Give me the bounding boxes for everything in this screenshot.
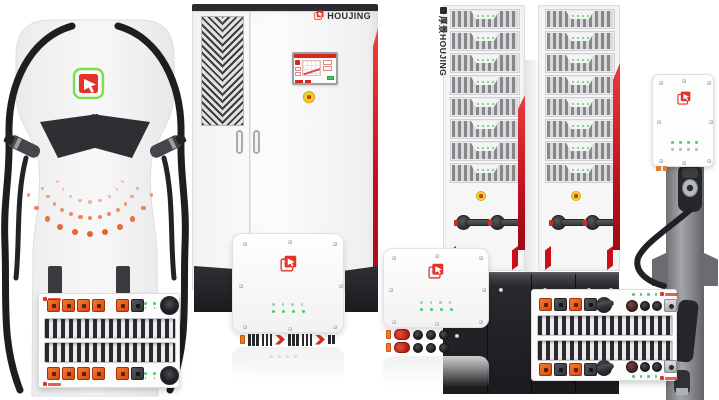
led-dot [582, 81, 584, 83]
product-lineup-image: HOUJING [0, 0, 719, 400]
ventilation-grille [201, 16, 244, 126]
connector-black [640, 362, 650, 372]
screw [479, 320, 483, 324]
houjing-icon-dark [440, 7, 447, 14]
connector-black [640, 301, 650, 311]
led-dot [482, 59, 484, 61]
led-dot [587, 15, 589, 17]
led-dot [572, 103, 574, 105]
screw [659, 159, 663, 163]
led-dot [477, 37, 479, 39]
reflection [232, 347, 344, 399]
connector-black-round [439, 343, 449, 353]
indicator-dot [27, 193, 31, 197]
pole-arm-left [652, 252, 668, 286]
led-dot [153, 372, 156, 375]
indicator-dot [34, 206, 39, 211]
io-connectors [626, 299, 677, 312]
status-leds [632, 375, 657, 378]
screw [657, 120, 661, 124]
status-leds [632, 293, 657, 296]
led-dot [671, 148, 674, 151]
indicator-dot [46, 195, 50, 199]
dc-connectors [539, 363, 597, 376]
led-dot [582, 125, 584, 127]
led-dot [487, 103, 489, 105]
connector-red-capsule [394, 342, 410, 353]
led-dot [292, 310, 295, 313]
led-dot [301, 303, 304, 306]
led-dot [477, 103, 479, 105]
indicator-dot [117, 224, 123, 230]
led-dot [577, 103, 579, 105]
screw [239, 284, 243, 288]
connector-black-round [426, 343, 436, 353]
houjing-logo: HOUJING [314, 10, 371, 21]
led-dot [587, 147, 589, 149]
connector-dark [554, 363, 567, 376]
led-dot [492, 125, 494, 127]
connector-red-capsule [394, 329, 410, 340]
indicator-dot [150, 193, 154, 197]
led-dot [440, 308, 443, 311]
led-dot [582, 15, 584, 17]
connector-orange [92, 299, 105, 312]
screw [709, 120, 713, 124]
vertical-brand-label: 厚景HOUJING [438, 7, 449, 76]
led-dot [587, 125, 589, 127]
screw [499, 288, 503, 292]
led-dot [582, 103, 584, 105]
inverter-unit-small [383, 248, 489, 328]
led-dot [492, 103, 494, 105]
ventilation-grille [44, 342, 176, 363]
connector-dark [584, 298, 597, 311]
led-dot [477, 169, 479, 171]
indicator-dot [72, 229, 78, 235]
led-dot [577, 169, 579, 171]
led-dot [487, 59, 489, 61]
rotary-switch-dc [456, 214, 492, 232]
led-dot [144, 302, 147, 305]
led-dot [577, 37, 579, 39]
houjing-icon [428, 263, 444, 284]
led-dot [572, 169, 574, 171]
indicator-dot [57, 224, 63, 230]
screw [707, 81, 711, 85]
tower-estop [477, 192, 485, 200]
screw [682, 161, 686, 165]
led-dot [655, 293, 658, 296]
tower-module-row [545, 97, 615, 117]
connector-orange [62, 299, 75, 312]
indicator-dot [78, 215, 83, 220]
led-dot [482, 125, 484, 127]
indicator-dot [116, 188, 119, 191]
led-dot [477, 59, 479, 61]
led-dot [291, 303, 294, 306]
terminal-row [386, 329, 449, 340]
led-dot [144, 372, 147, 375]
led-dot [695, 141, 698, 144]
indicator-dot [78, 199, 81, 202]
tower-gap-shadow [525, 60, 538, 275]
emergency-stop-button [304, 92, 314, 102]
connector-maroon [626, 361, 638, 373]
screen-header [294, 54, 336, 58]
red-accent-stripe [613, 63, 620, 250]
led-dot [632, 375, 635, 378]
led-dot [487, 37, 489, 39]
dc-connectors [47, 299, 144, 312]
screw [682, 79, 686, 83]
led-dot [587, 37, 589, 39]
connector-dark [131, 299, 144, 312]
led-dot [477, 81, 479, 83]
led-dot [482, 147, 484, 149]
led-dot [572, 37, 574, 39]
wall-terminal [656, 166, 661, 171]
led-dot [492, 169, 494, 171]
connector-orange [116, 299, 129, 312]
indicator-dot [41, 187, 44, 190]
connector-orange [77, 299, 90, 312]
ventilation-grille [537, 340, 673, 361]
connector-orange-tab [386, 330, 391, 339]
cabinet-base-right [345, 266, 378, 312]
screw [435, 254, 439, 258]
screw [455, 334, 459, 338]
tower-module-row [450, 119, 520, 139]
inverter-unit-large [232, 233, 344, 333]
module-stack [545, 9, 615, 185]
led-dot [492, 147, 494, 149]
led-dot [482, 169, 484, 171]
tower-module-row [545, 9, 615, 29]
screw [392, 256, 396, 260]
led-dot [679, 141, 682, 144]
led-dot [572, 147, 574, 149]
dc-connectors [47, 367, 144, 380]
indicator-dot [87, 231, 93, 237]
connector-orange [116, 367, 129, 380]
power-module-pair-left [38, 293, 180, 388]
red-accent-stripe [518, 95, 525, 250]
led-dot [492, 37, 494, 39]
led-dot [679, 148, 682, 151]
connector-pins [248, 334, 259, 346]
led-dot [482, 81, 484, 83]
screw [243, 242, 247, 246]
connector-orange [77, 367, 90, 380]
connector-silver [664, 360, 677, 373]
led-dot [487, 125, 489, 127]
led-dot [582, 169, 584, 171]
connector-dark [584, 363, 597, 376]
power-rack-tower-2 [538, 5, 620, 271]
screw [707, 159, 711, 163]
led-dot [632, 293, 635, 296]
houjing-icon [677, 91, 691, 110]
connector-black [652, 301, 662, 311]
connector-orange [92, 367, 105, 380]
led-dot [430, 308, 433, 311]
led-dot [582, 147, 584, 149]
screw [339, 284, 343, 288]
tower-module-row [450, 75, 520, 95]
led-dot [449, 301, 452, 304]
led-dot [577, 81, 579, 83]
led-dot [671, 141, 674, 144]
led-dot [477, 147, 479, 149]
led-dot [647, 375, 650, 378]
led-dot [587, 169, 589, 171]
tower-estop [572, 192, 580, 200]
status-leds-dim [671, 148, 698, 151]
screw [243, 325, 247, 329]
connector-black-round [413, 343, 423, 353]
indicator-dot [56, 180, 59, 183]
led-dot [282, 310, 285, 313]
ventilation-grille [44, 318, 176, 339]
led-dot [439, 301, 442, 304]
led-dot [640, 375, 643, 378]
touchscreen-display [292, 52, 338, 85]
led-dot [572, 81, 574, 83]
led-dot [420, 301, 423, 304]
connector-black-round [426, 330, 436, 340]
screen-ok-button [327, 76, 334, 80]
led-dot [572, 15, 574, 17]
screw [482, 288, 486, 292]
connector-red-block [315, 335, 325, 345]
connector-orange [47, 367, 60, 380]
tower-module-row [545, 75, 615, 95]
terminal-row [386, 342, 449, 353]
tower-module-row [450, 53, 520, 73]
connector-silver [664, 299, 677, 312]
status-leds [671, 141, 698, 144]
led-dot [577, 125, 579, 127]
tower-module-row [450, 97, 520, 117]
screw [659, 81, 663, 85]
led-dot [487, 15, 489, 17]
status-leds [272, 310, 305, 313]
connector-pins [288, 334, 299, 346]
led-dot [577, 147, 579, 149]
led-dot [420, 308, 423, 311]
tower-module-row [545, 141, 615, 161]
led-dot [487, 169, 489, 171]
tower-module-row [545, 163, 615, 183]
indicator-dot [60, 208, 64, 212]
indicator-dot [141, 206, 146, 211]
screw [288, 327, 292, 331]
brand-name: HOUJING [327, 11, 371, 21]
led-dot [487, 81, 489, 83]
indicator-dot [45, 216, 50, 221]
connector-maroon [626, 300, 638, 312]
terminal-row [240, 333, 344, 346]
screw [389, 288, 393, 292]
led-dot [302, 310, 305, 313]
screw [392, 320, 396, 324]
indicator-dot [53, 202, 57, 206]
led-dot [477, 125, 479, 127]
led-dot [450, 308, 453, 311]
screw [288, 240, 292, 244]
led-dot [687, 148, 690, 151]
indicator-dot [121, 180, 124, 183]
houjing-mini-logo [660, 376, 678, 380]
pole-arm-right [702, 252, 718, 286]
led-dot [487, 147, 489, 149]
led-dot [587, 59, 589, 61]
connector-orange [539, 298, 552, 311]
connector-orange [62, 367, 75, 380]
power-module-pair-right [531, 289, 677, 381]
led-dot [572, 125, 574, 127]
indicator-dot [108, 195, 111, 198]
screw [435, 322, 439, 326]
led-dot [577, 15, 579, 17]
led-dot [282, 303, 285, 306]
connector-black-round [413, 330, 423, 340]
connector-orange [539, 363, 552, 376]
led-dot [482, 103, 484, 105]
indicator-dot [102, 229, 108, 235]
ventilation-grille [537, 315, 673, 336]
led-dot [587, 81, 589, 83]
houjing-mini-logo [660, 292, 678, 296]
power-rack-tower-1 [443, 5, 525, 271]
connector-black-round [439, 330, 449, 340]
dc-connectors [539, 298, 597, 311]
indicator-dot [124, 202, 128, 206]
rotary-switch-dc [551, 214, 587, 232]
screw [333, 242, 337, 246]
reflection [383, 356, 489, 398]
connector-dark [131, 367, 144, 380]
status-leds-dim [420, 301, 451, 304]
led-dot [482, 15, 484, 17]
module-stack [450, 9, 520, 185]
connector-orange [47, 299, 60, 312]
indicator-dot [62, 188, 65, 191]
rotary-knob [596, 360, 612, 376]
led-dot [582, 37, 584, 39]
tower-module-row [450, 141, 520, 161]
tower-module-row [545, 31, 615, 51]
io-connectors [626, 360, 677, 373]
tower-module-row [450, 163, 520, 183]
indicator-dot [69, 195, 72, 198]
indicator-dot [130, 195, 134, 199]
door-handle-left [236, 130, 243, 154]
indicator-dot [107, 212, 111, 216]
indicator-dot [69, 212, 73, 216]
led-dot [577, 59, 579, 61]
led-dot [492, 81, 494, 83]
cooling-fan [160, 366, 179, 385]
wall-mounted-charger [652, 74, 714, 167]
connector-pins [262, 334, 273, 346]
rotary-knob [596, 297, 612, 313]
door-handle-right [253, 130, 260, 154]
led-dot [153, 302, 156, 305]
indicator-dot [98, 215, 103, 220]
connector-red-block [275, 335, 285, 345]
connector-pins [302, 334, 313, 346]
screw [333, 325, 337, 329]
houjing-icon [314, 7, 324, 25]
led-dot [492, 59, 494, 61]
indicator-dot [98, 199, 101, 202]
connector-orange-tab [386, 343, 391, 352]
red-accent-stripe [373, 28, 378, 290]
led-dot [687, 141, 690, 144]
screen-logo [295, 60, 300, 65]
houjing-icon [280, 255, 297, 277]
wall-terminal [663, 166, 667, 171]
connector-orange [569, 363, 582, 376]
led-dot [647, 293, 650, 296]
indicator-dot [88, 200, 91, 203]
led-dot [695, 148, 698, 151]
cooling-fan [160, 296, 179, 315]
led-dot [640, 293, 643, 296]
led-dot [582, 59, 584, 61]
connector-orange-tab [240, 335, 245, 344]
status-leds [420, 308, 453, 311]
led-dot [272, 303, 275, 306]
led-dot [272, 310, 275, 313]
led-dot [572, 59, 574, 61]
led-dot [492, 15, 494, 17]
connector-pins-small [328, 335, 335, 344]
tower-module-row [450, 31, 520, 51]
screen-chart [302, 60, 321, 76]
led-dot [587, 103, 589, 105]
led-dot [430, 301, 433, 304]
status-leds-dim [272, 303, 303, 306]
houjing-mini-logo [43, 382, 61, 386]
tower-module-row [545, 53, 615, 73]
connector-black [652, 362, 662, 372]
tower-module-row [545, 119, 615, 139]
indicator-dot [130, 216, 135, 221]
led-dot [655, 375, 658, 378]
indicator-dot [88, 216, 93, 221]
indicator-dot [136, 187, 139, 190]
tower-module-row [450, 9, 520, 29]
led-dot [477, 15, 479, 17]
connector-dark [554, 298, 567, 311]
connector-orange [569, 298, 582, 311]
screw [479, 256, 483, 260]
led-dot [482, 37, 484, 39]
indicator-dot [116, 208, 120, 212]
